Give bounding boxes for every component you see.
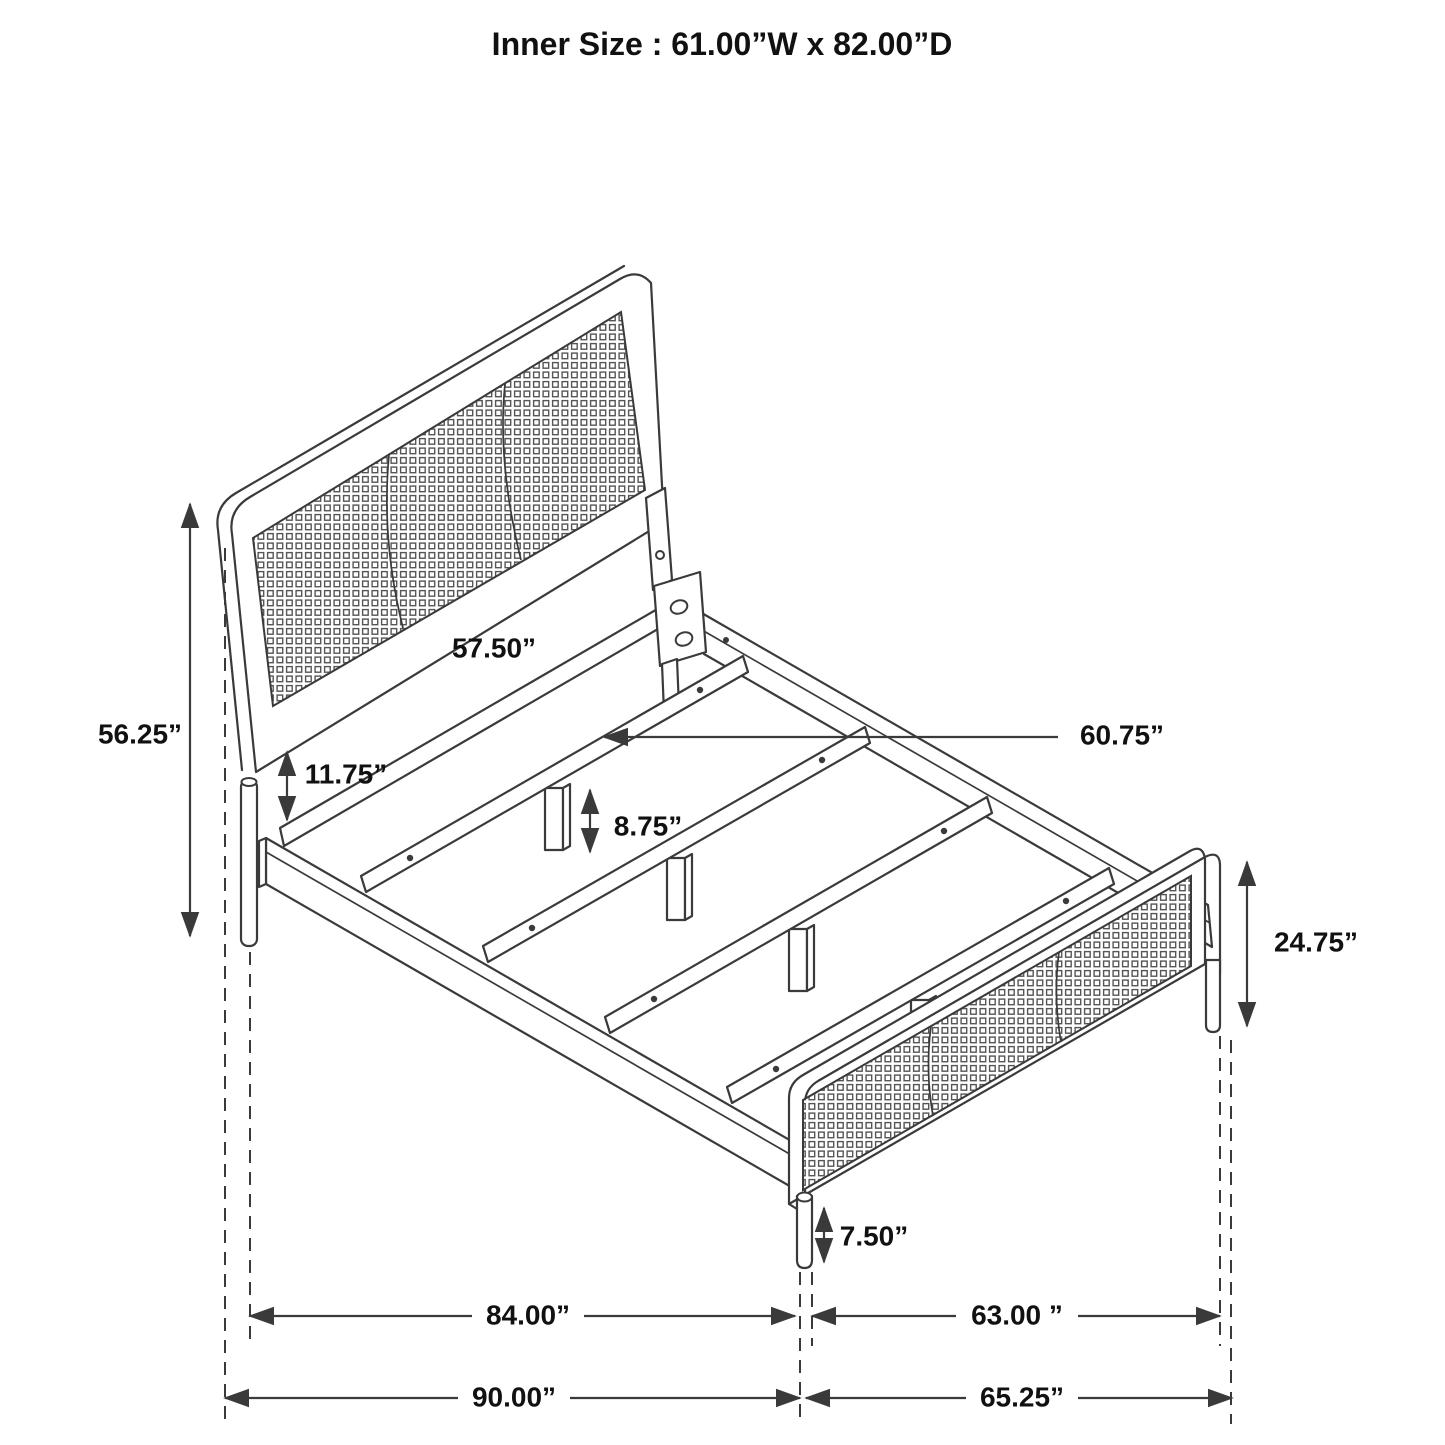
footboard	[789, 849, 1220, 1268]
near-side-rail	[259, 838, 800, 1192]
rail-bracket	[654, 572, 706, 666]
label-overall-width: 65.25”	[980, 1381, 1064, 1412]
center-leg	[789, 925, 814, 991]
label-overall-length: 90.00”	[472, 1381, 556, 1412]
label-slat-length: 60.75”	[1080, 719, 1164, 750]
label-footboard-leg-height: 7.50”	[840, 1220, 909, 1251]
bed-dimension-diagram: Inner Size : 61.00”W x 82.00”D 56.25” 57…	[0, 0, 1445, 1445]
label-slat-leg-height: 8.75”	[614, 810, 683, 841]
label-headboard-height: 56.25”	[98, 718, 182, 749]
label-footboard-height: 24.75”	[1274, 926, 1358, 957]
label-headboard-panel-width: 57.50”	[452, 632, 536, 663]
headboard-left-leg	[241, 780, 257, 946]
label-panel-gap: 11.75”	[305, 758, 388, 789]
footboard-front-leg	[797, 1196, 812, 1268]
label-footboard-span: 63.00 ”	[971, 1299, 1063, 1330]
page-title: Inner Size : 61.00”W x 82.00”D	[492, 26, 953, 62]
dimension-diagram-page: Inner Size : 61.00”W x 82.00”D 56.25” 57…	[0, 0, 1445, 1445]
center-leg	[667, 854, 692, 920]
footboard-cane-panel	[803, 876, 1191, 1190]
center-leg	[545, 784, 570, 850]
footboard-rear-leg	[1206, 960, 1220, 1032]
label-rail-span: 84.00”	[486, 1299, 570, 1330]
